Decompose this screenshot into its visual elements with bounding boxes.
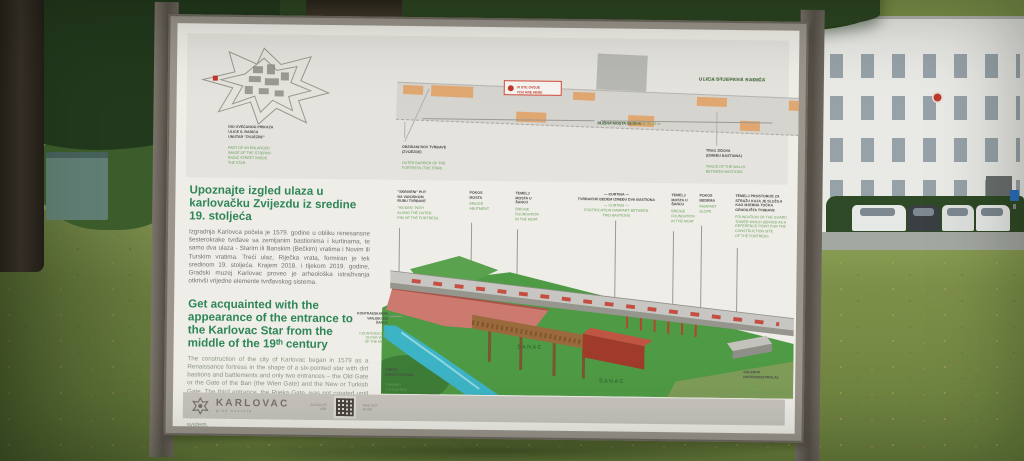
qr-code — [334, 396, 356, 418]
plan-building-footprint — [431, 85, 473, 98]
qr-caption-hr: SAZNAJTE VIŠE — [310, 403, 326, 412]
plan-label-moat-en: OUTER BARRIER OF THE FORTRESS (THE STAR) — [402, 161, 482, 172]
plan-label-walls-hr: TRAG ZIDOVA (IZMEĐU BASTIONA) — [706, 148, 786, 159]
car-windows — [913, 208, 934, 216]
parking-sign-icon — [1010, 190, 1019, 201]
parked-car-dark — [908, 205, 940, 231]
no-entry-sign-icon — [932, 92, 943, 103]
plan-building-footprint — [697, 97, 727, 107]
label-counterscarp: KONTRAESKARPA VANJSKI ZID ŠANCA COUNTERS… — [344, 307, 389, 349]
you-are-here-marker: VI STE OVDJEYOU ARE HERE — [504, 80, 562, 96]
parked-car-white-1 — [942, 205, 974, 231]
body-croatian: Izgradnja Karlovca počela je 1579. godin… — [188, 228, 370, 288]
pavement — [822, 232, 1024, 250]
star-outline — [202, 47, 329, 125]
callout-curtain-wall: — KURTINA — TVRĐAVSKI BEDEM IZMEĐU DVA B… — [565, 192, 667, 219]
street-name-en: • STJEPAN RADIĆ STREET — [699, 77, 766, 83]
car-windows — [981, 208, 1003, 216]
plan-label-walls: TRAG ZIDOVA (IZMEĐU BASTIONA) TRACE OF T… — [706, 144, 786, 181]
plan-label-moat: OBZIDANI ROV TVRĐAVE (ZVIJEZDE) OUTER BA… — [402, 140, 482, 177]
qr-caption-en: FIND OUT MORE — [363, 403, 378, 411]
callout-hidden-path: "SKRIVENI" PUT NA VANJSKOM RUBU TVRĐAVE"… — [397, 190, 463, 221]
callout-guard-tower-foundation: TEMELJ PROSTORIJE ZA STRAŽU KOJA JE SLUŽ… — [735, 194, 800, 239]
you-are-here-dot-icon — [508, 85, 514, 91]
highlighted-location — [213, 76, 218, 81]
car-windows — [947, 208, 968, 216]
bridge-length-en: • LENGTH OF THE BRIDGE 33,10 m — [597, 121, 660, 126]
plan-building-footprint — [789, 101, 800, 112]
callout-rampart-slope: POKOS BEDEMARAMPART SLOPE — [699, 194, 739, 215]
star-caption-en: PART OF AN ENLARGED IMAGE OF THE STJEPAN… — [228, 146, 318, 166]
background-kiosk — [46, 152, 108, 220]
board-frame: DIO UVEĆANOG PRIKAZA ULICE S. RADIĆA UNU… — [164, 14, 809, 443]
tree-trunk-left — [0, 0, 44, 272]
brand-tagline: grad susreta — [216, 410, 290, 415]
brand-name: KARLOVAC — [216, 398, 290, 410]
title-english: Get acquainted with the appearance of th… — [188, 297, 370, 352]
information-board: DIO UVEĆANOG PRIKAZA ULICE S. RADIĆA UNU… — [137, 2, 843, 461]
plan-label-moat-hr: OBZIDANI ROV TVRĐAVE (ZVIJEZDE) — [402, 145, 482, 156]
karlovac-star-logo-icon — [192, 397, 209, 414]
star-inset-caption: DIO UVEĆANOG PRIKAZA ULICE S. RADIĆA UNU… — [228, 120, 319, 172]
park-photo-scene: DIO UVEĆANOG PRIKAZA ULICE S. RADIĆA UNU… — [0, 0, 1024, 461]
bridge-axonometric-illustration: ŠANAC ŠANAC — [381, 230, 795, 399]
title-croatian: Upoznajte izgled ulaza u karlovačku Zvij… — [189, 183, 370, 225]
brand-block: KARLOVAC grad susreta — [216, 398, 290, 415]
label-channel: KINETA KORITO POTOKA CHANNEL STREAM BED — [385, 364, 437, 397]
star-caption-hr: DIO UVEĆANOG PRIKAZA ULICE S. RADIĆA UNU… — [228, 125, 318, 141]
plan-building-block — [596, 53, 648, 91]
board-panel: DIO UVEĆANOG PRIKAZA ULICE S. RADIĆA UNU… — [173, 23, 800, 434]
fortress-star-inset-map — [188, 45, 339, 125]
plan-building-footprint — [516, 112, 546, 123]
van-windows — [860, 208, 895, 216]
callout-bridge-foundation-left: TEMELJ MOSTA U ŠANCUBRIDGE FOUNDATION IN… — [515, 191, 561, 222]
parked-van — [852, 205, 906, 231]
plan-label-walls-en: TRACE OF THE WALLS BETWEEN BASTIONS — [706, 165, 786, 176]
label-gallery: GALERIJA NATKRIVENI PROLAZ GALLERY COVER… — [743, 366, 793, 399]
moat-label-2: ŠANAC — [599, 378, 625, 385]
callout-bridge-abutment: POKOS MOSTABRIDGE ABUTMENT — [469, 191, 511, 212]
moat-label-1: ŠANAC — [517, 343, 543, 350]
plan-building-footprint — [573, 92, 595, 101]
plan-building-footprint — [403, 85, 423, 95]
parked-car-white-2 — [976, 205, 1010, 231]
survey-line — [404, 122, 405, 138]
leader-line — [390, 316, 402, 317]
